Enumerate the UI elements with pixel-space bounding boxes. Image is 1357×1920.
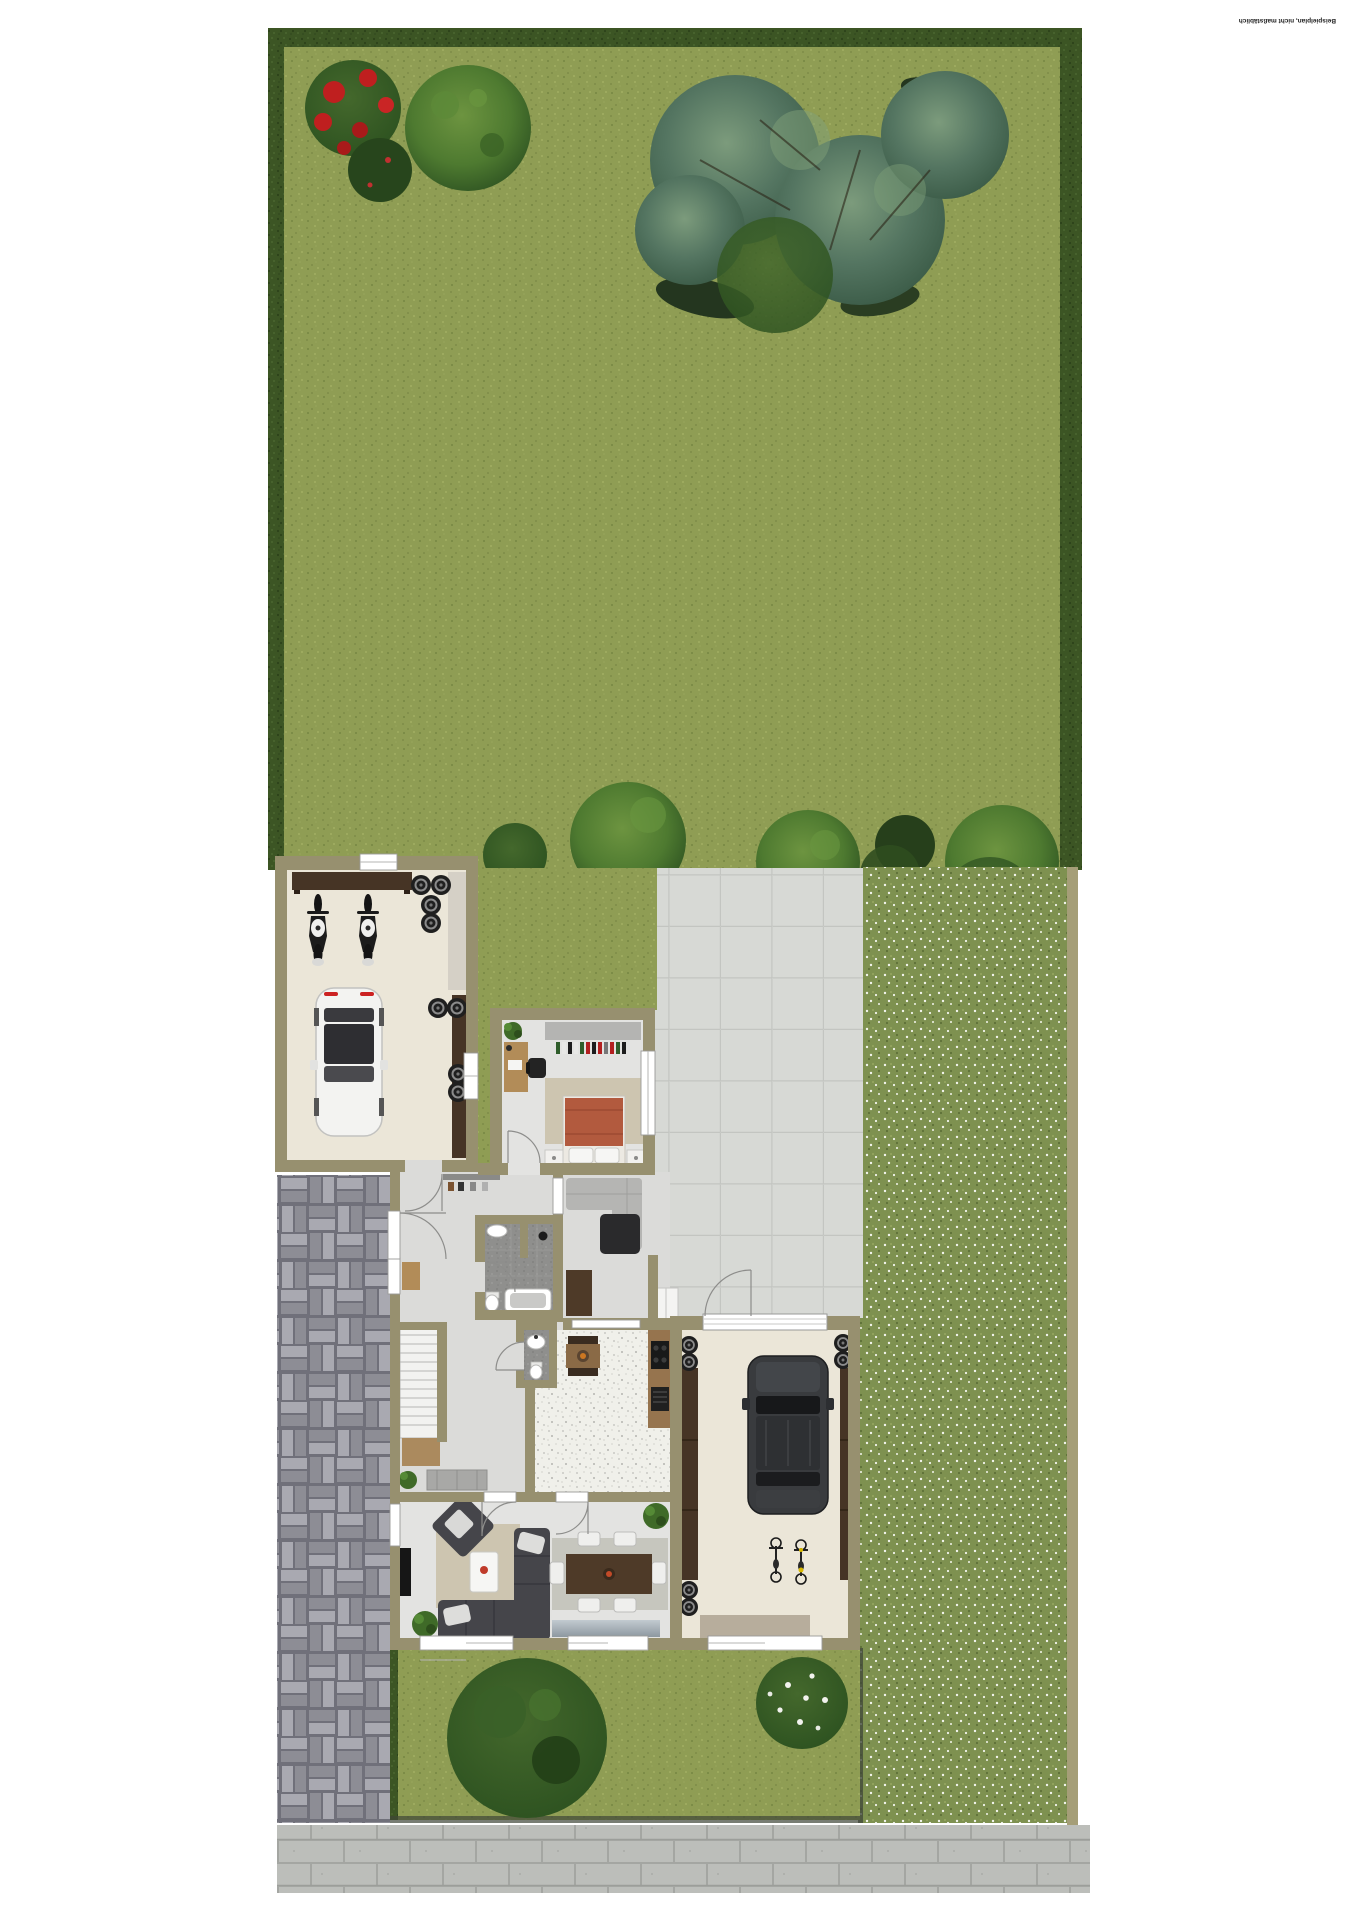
sitting-window (553, 1178, 563, 1214)
garage1-counter (448, 872, 466, 990)
backyard (268, 28, 1082, 953)
sidewalk (277, 1825, 1090, 1893)
living-plant-left (412, 1611, 438, 1637)
bathroom-sink (487, 1225, 507, 1237)
hedge-top (268, 28, 1082, 47)
bedroom (502, 1020, 645, 1170)
motorcycle-garage (287, 870, 468, 1160)
wc-toilet (530, 1362, 542, 1379)
coffee-table (470, 1552, 498, 1592)
front-hedge-strip (390, 1648, 398, 1820)
workbench (292, 872, 412, 890)
hedge-left (268, 28, 284, 870)
kitchen-bench-top (568, 1336, 598, 1344)
bed (563, 1096, 625, 1170)
hall-window (388, 1258, 400, 1294)
white-car (310, 988, 388, 1136)
toilet (486, 1292, 500, 1311)
lawn-edge (390, 1816, 860, 1823)
green-bush (405, 65, 531, 191)
floor-plan-drawing (0, 0, 1357, 1920)
oven (651, 1387, 669, 1411)
shoe-bench (402, 1262, 420, 1290)
living-window-left (390, 1504, 400, 1546)
front-lawn (390, 1648, 860, 1823)
blossom-tree (756, 1657, 848, 1749)
tv (400, 1548, 411, 1596)
towel-hook (539, 1232, 548, 1241)
garage2-door (703, 1314, 827, 1330)
sitting-armchair (600, 1214, 640, 1254)
dining-area (550, 1532, 668, 1612)
garage2-shelf-left (682, 1368, 698, 1580)
front-tree (447, 1658, 607, 1818)
hedge-right (1060, 28, 1082, 870)
cooktop (651, 1341, 669, 1369)
black-suv (742, 1356, 834, 1514)
driveway (277, 1175, 390, 1823)
site-plan-page: Beispielplan, nicht maßstäblich (0, 0, 1357, 1920)
car-garage (680, 1330, 856, 1640)
kitchen-bench-bottom (568, 1368, 598, 1376)
flower-meadow (858, 867, 1078, 1833)
living-sideboard (552, 1620, 660, 1637)
wc (524, 1330, 549, 1380)
yard-strip-narrow (478, 1008, 492, 1172)
living-room (400, 1493, 670, 1640)
fence-right (1067, 867, 1078, 1833)
living-plant-right (643, 1503, 669, 1529)
stair-landing (402, 1438, 440, 1466)
sitting-table (566, 1270, 592, 1316)
closet (545, 1022, 641, 1040)
yard-strip (478, 868, 657, 1010)
kitchen-opening (572, 1320, 640, 1328)
stairs (400, 1326, 440, 1466)
hall-plant (399, 1471, 417, 1489)
desk-chair (526, 1058, 546, 1078)
watermark-text: Beispielplan, nicht maßstäblich (1252, 16, 1336, 24)
patio (655, 868, 863, 1318)
bedroom-plant (504, 1022, 522, 1040)
